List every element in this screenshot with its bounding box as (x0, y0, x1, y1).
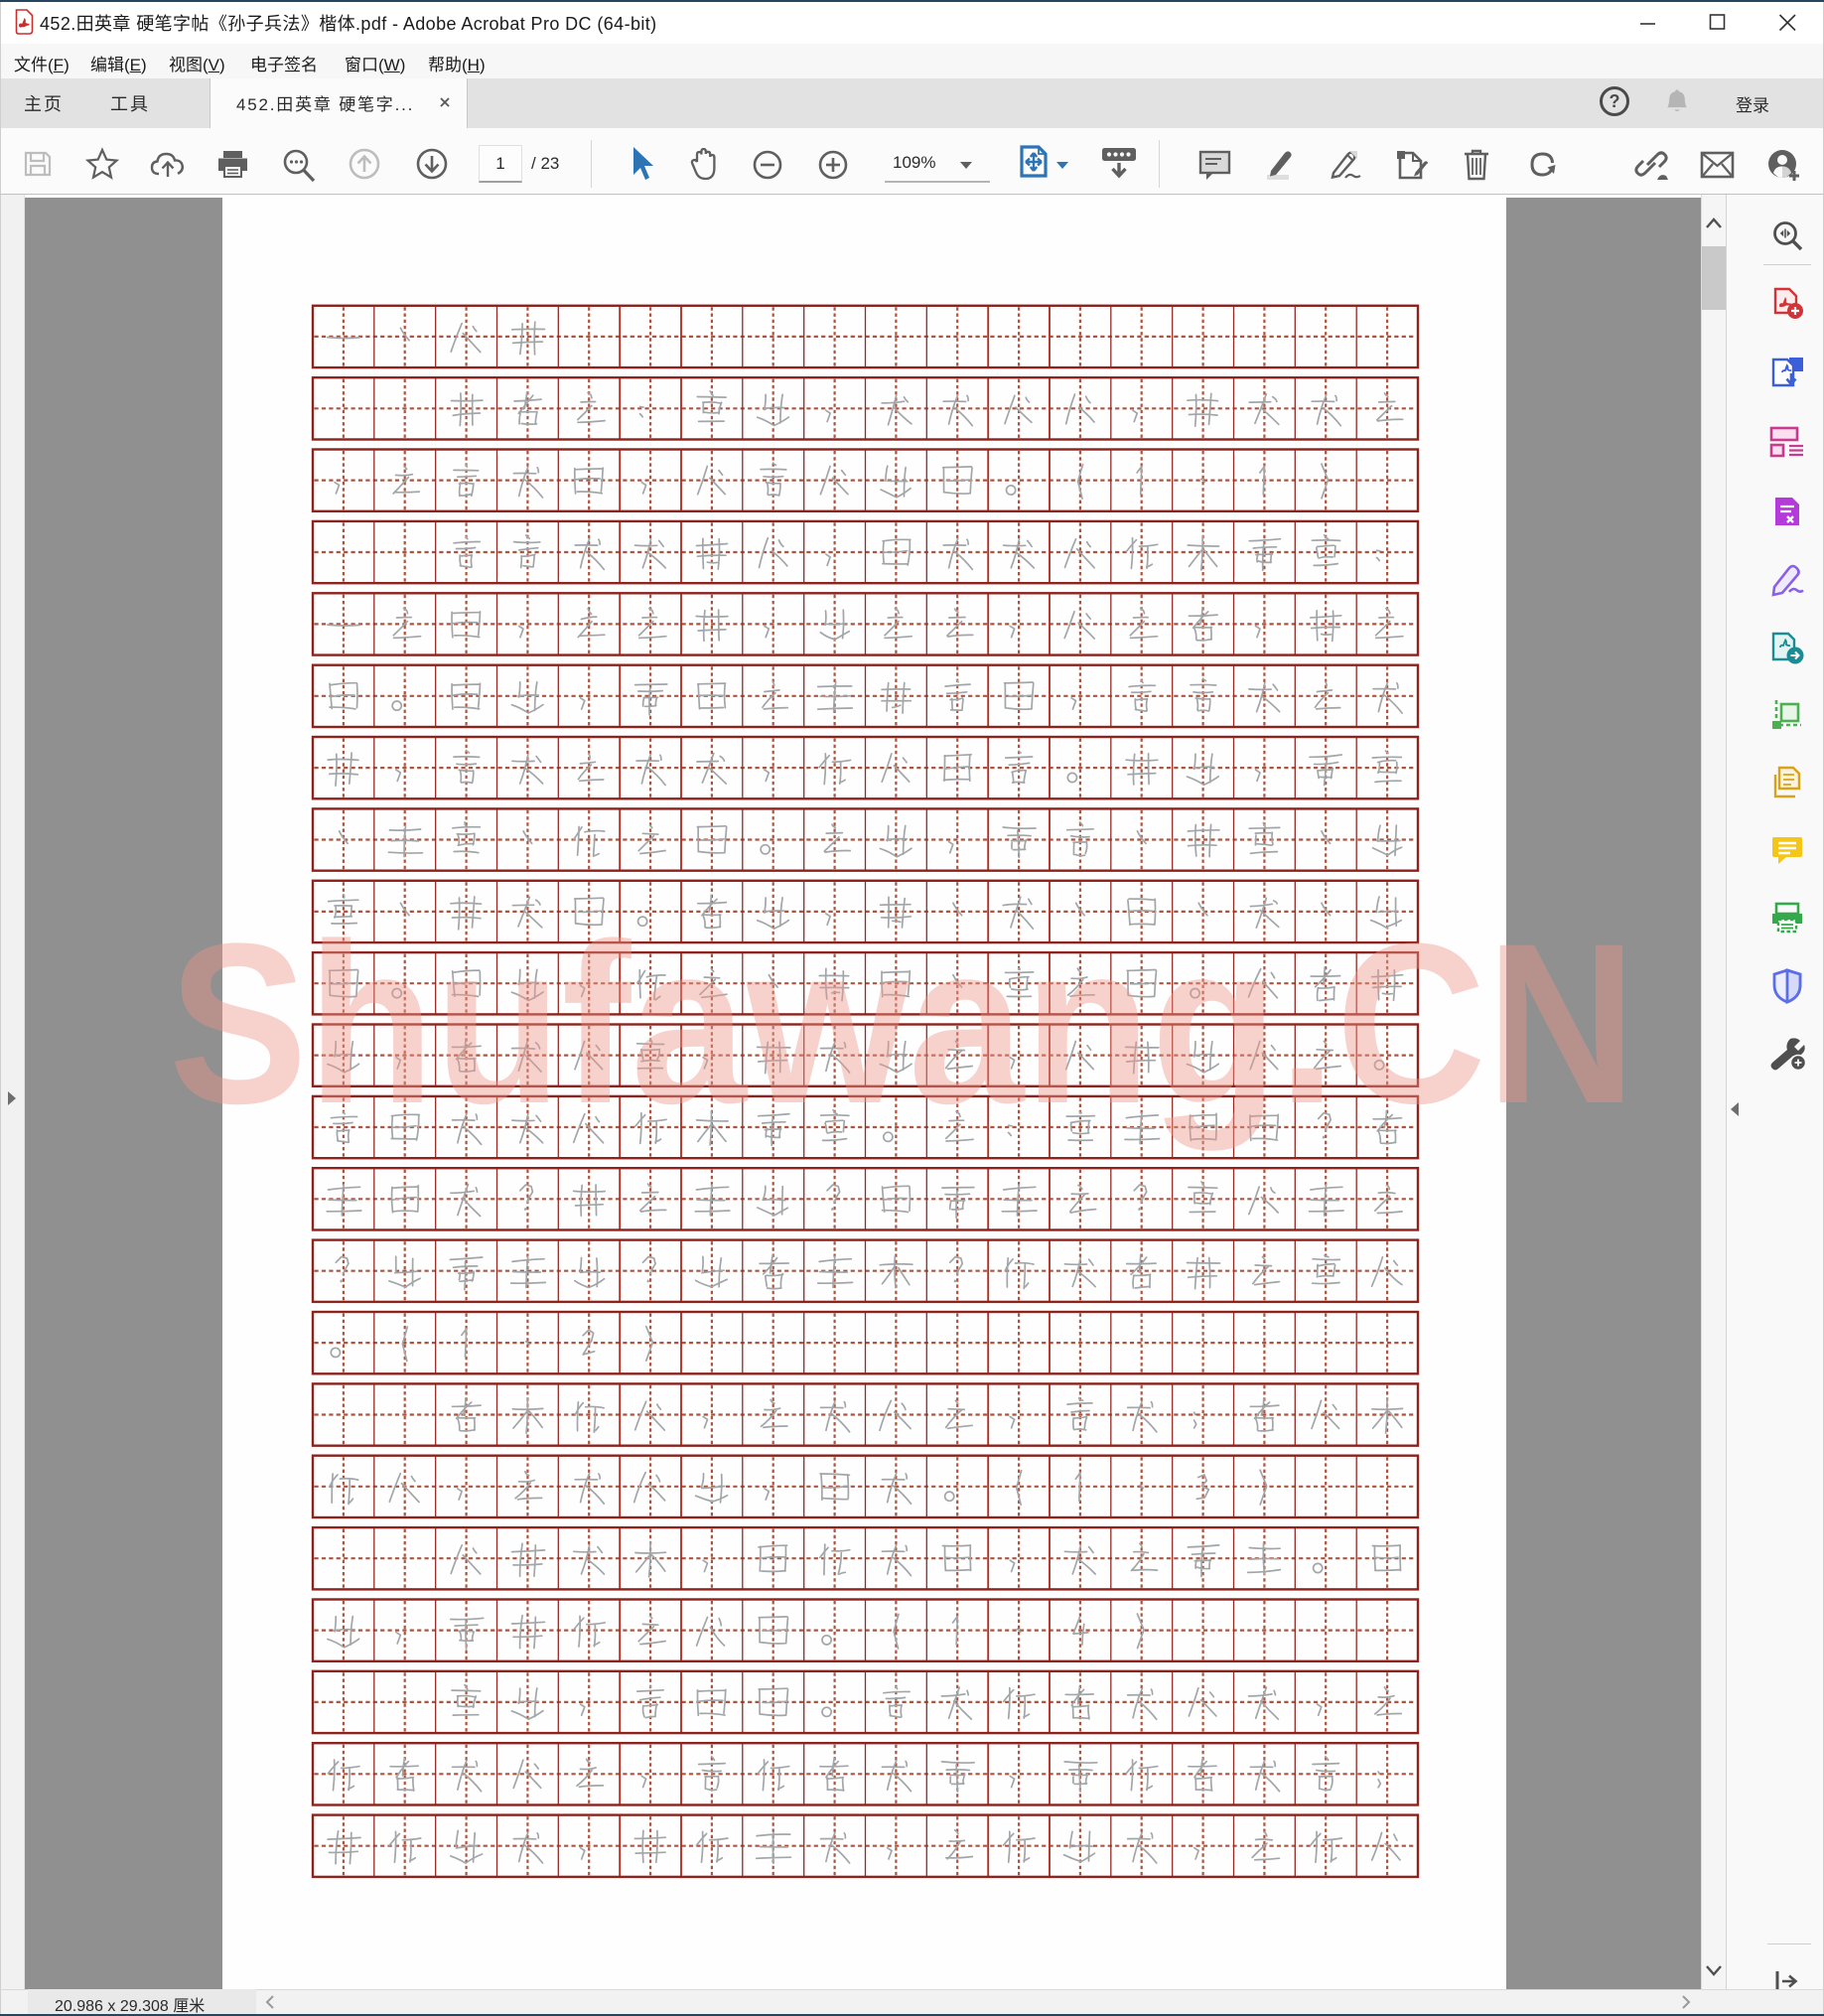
svg-text:?: ? (1610, 91, 1620, 111)
svg-text:Shufawang.CN: Shufawang.CN (169, 896, 1636, 1151)
